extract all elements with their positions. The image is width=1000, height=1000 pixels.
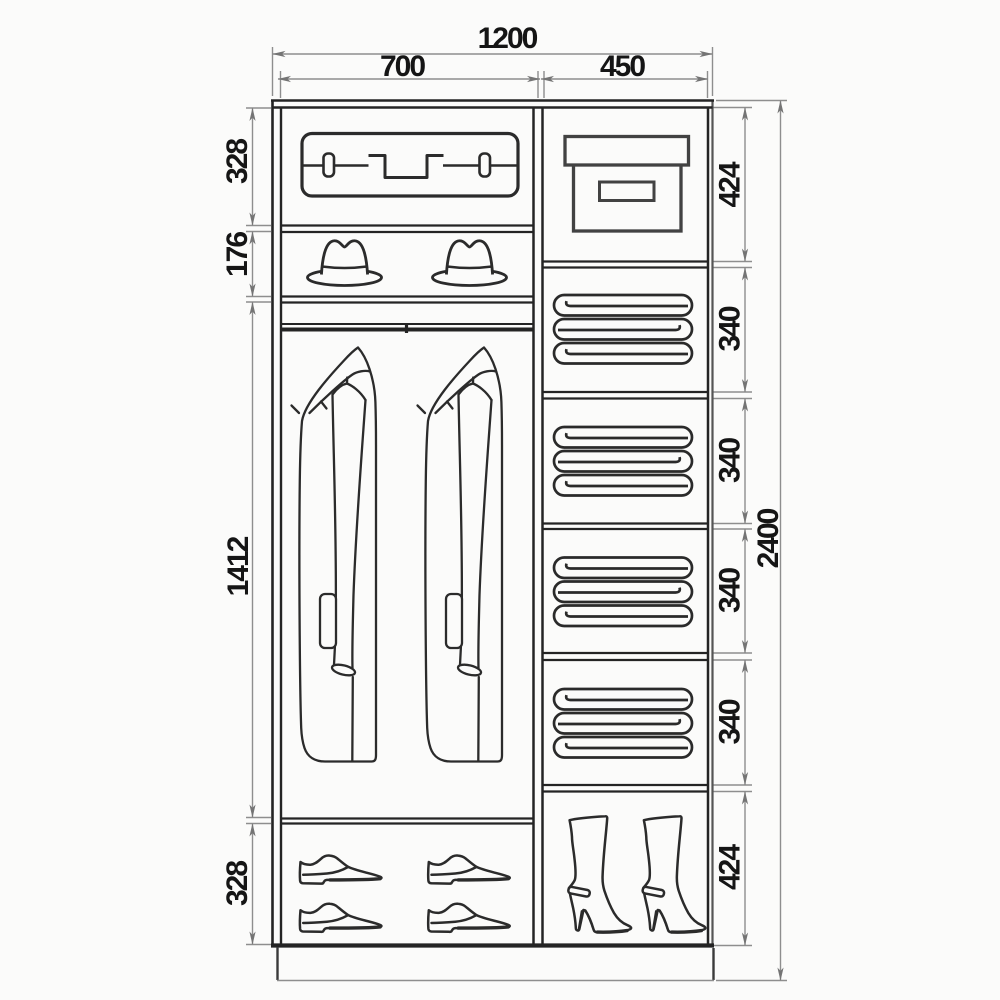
svg-text:340: 340 [714, 699, 747, 744]
svg-text:700: 700 [380, 50, 425, 83]
svg-text:450: 450 [600, 50, 645, 83]
svg-text:328: 328 [221, 139, 254, 184]
svg-text:340: 340 [714, 568, 747, 613]
svg-text:1200: 1200 [478, 22, 538, 55]
svg-text:340: 340 [714, 438, 747, 483]
svg-text:340: 340 [714, 306, 747, 351]
svg-text:424: 424 [714, 161, 747, 207]
svg-text:1412: 1412 [222, 536, 255, 596]
svg-text:176: 176 [221, 232, 254, 277]
svg-text:2400: 2400 [752, 508, 785, 568]
svg-text:424: 424 [714, 844, 747, 890]
svg-text:328: 328 [221, 861, 254, 906]
